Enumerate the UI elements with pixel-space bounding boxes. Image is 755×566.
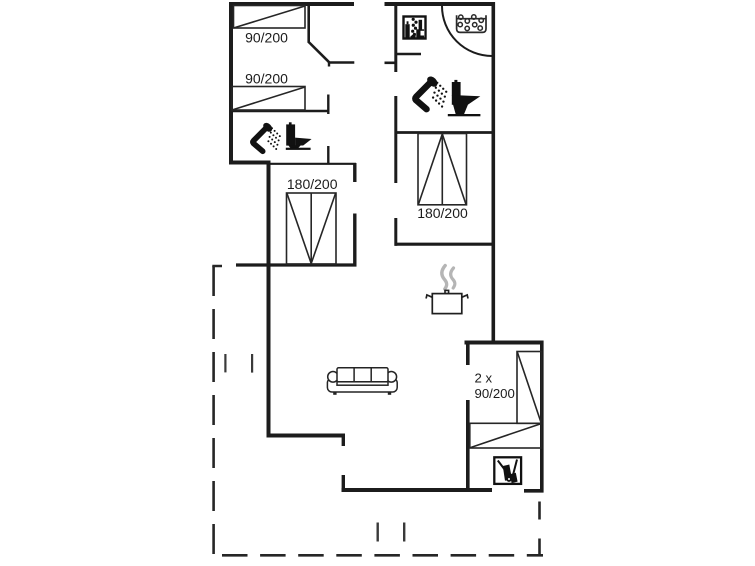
svg-text:2 x: 2 x xyxy=(475,371,493,386)
svg-text:180/200: 180/200 xyxy=(417,205,468,221)
svg-text:90/200: 90/200 xyxy=(245,71,288,87)
svg-text:180/200: 180/200 xyxy=(287,176,338,192)
svg-text:90/200: 90/200 xyxy=(475,386,515,401)
svg-text:90/200: 90/200 xyxy=(245,30,288,46)
